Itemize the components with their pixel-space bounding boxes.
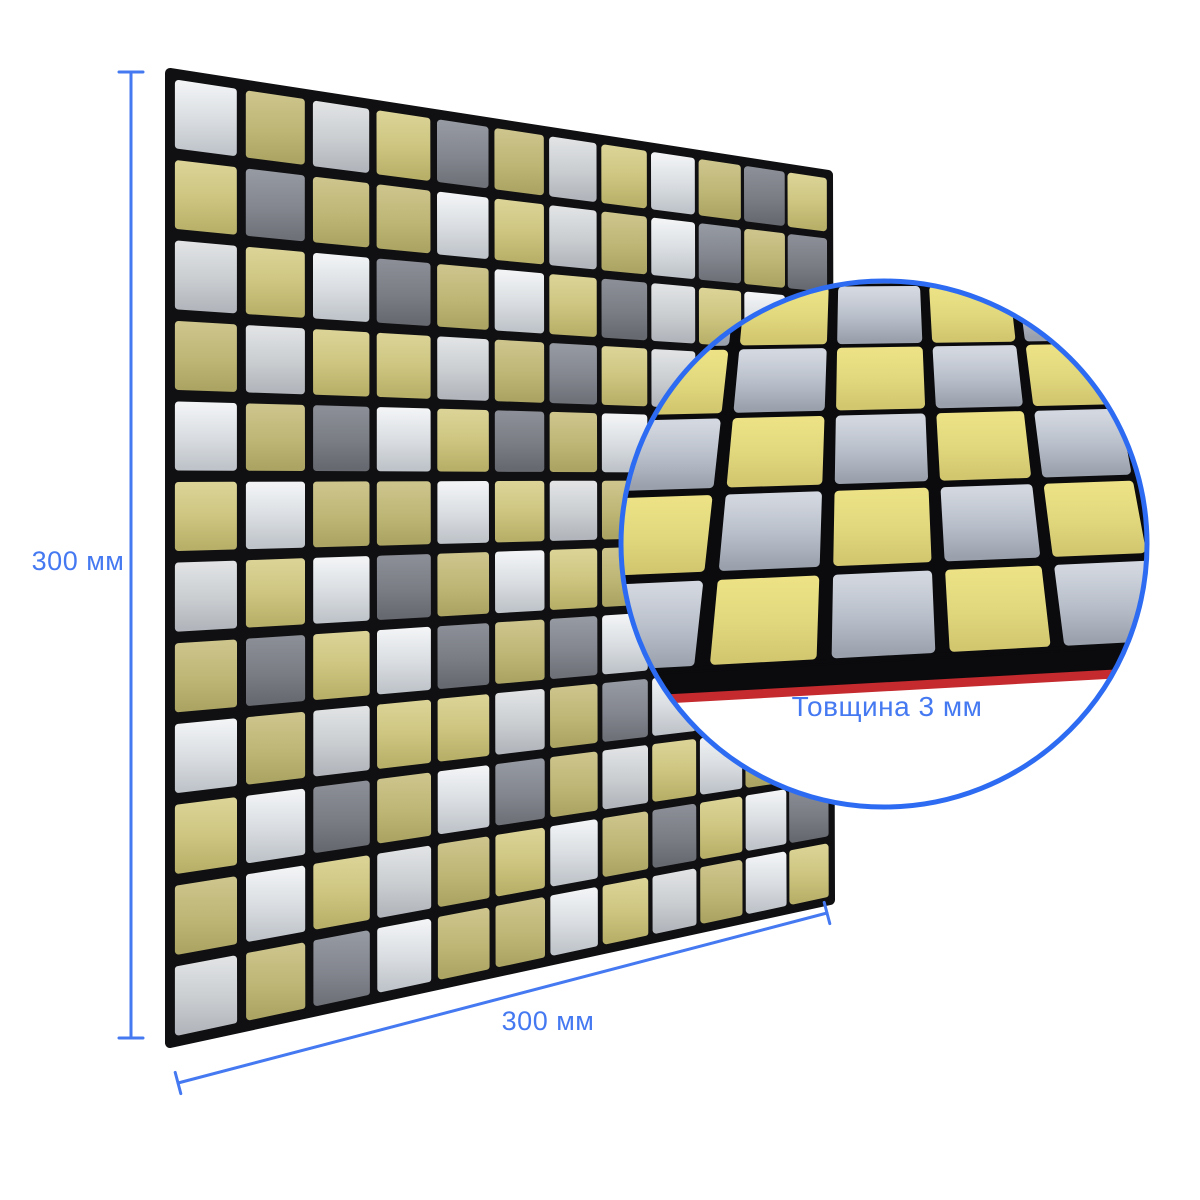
mosaic-tile — [499, 762, 542, 822]
mosaic-tile — [748, 170, 782, 223]
height-dimension-label: 300 мм — [16, 547, 140, 577]
mosaic-tile — [250, 869, 302, 938]
width-dimension-label: 300 мм — [474, 1007, 622, 1037]
mosaic-tile — [381, 776, 428, 839]
thickness-label: Товщина 3 мм — [780, 692, 994, 723]
mosaic-tile — [178, 84, 233, 153]
mosaic-tile — [441, 911, 486, 975]
mosaic-tile — [606, 749, 645, 806]
mosaic-tile — [178, 959, 233, 1032]
mosaic-tile — [441, 268, 486, 327]
mosaic-tile — [498, 132, 541, 192]
mosaic-tile — [554, 755, 595, 813]
mosaic-tile — [606, 683, 645, 739]
mosaic-tile — [249, 562, 301, 624]
inset-tile — [841, 351, 921, 406]
inset-tile — [842, 291, 918, 340]
inset-tile — [843, 235, 915, 279]
mosaic-tile — [499, 901, 542, 964]
mosaic-tile — [380, 558, 427, 617]
mosaic-tile — [655, 221, 692, 275]
inset-tile — [945, 489, 1035, 557]
mosaic-tile — [656, 872, 693, 930]
mosaic-tile — [317, 560, 366, 621]
mosaic-tile — [380, 411, 427, 468]
mosaic-tile — [178, 801, 233, 870]
mosaic-tile — [317, 784, 367, 849]
inset-tile — [937, 350, 1018, 404]
mosaic-tile — [380, 114, 427, 177]
mosaic-tile — [317, 333, 366, 393]
inset-tile — [950, 570, 1046, 647]
mosaic-tile — [553, 140, 594, 198]
inset-tile — [1039, 413, 1126, 473]
mosaic-tile — [499, 693, 542, 752]
mosaic-tile — [249, 329, 301, 391]
mosaic-tile — [704, 864, 739, 920]
mosaic-tile — [250, 792, 302, 859]
inset-tile — [738, 353, 822, 409]
mosaic-tile — [791, 176, 823, 227]
inset-tile — [931, 235, 1004, 279]
mosaic-tile — [178, 405, 233, 467]
mosaic-tile — [499, 554, 542, 610]
mosaic-tile — [605, 148, 644, 205]
mosaic-tile — [499, 831, 542, 892]
mosaic-tile — [178, 880, 233, 951]
mosaic-tile — [317, 709, 366, 773]
mosaic-tile — [553, 415, 594, 468]
mosaic-tile — [249, 94, 301, 161]
mosaic-tile — [441, 840, 486, 903]
mosaic-tile — [441, 340, 486, 397]
mosaic-tile — [554, 687, 595, 744]
mosaic-tile — [749, 855, 783, 910]
mosaic-tile — [441, 698, 486, 758]
mosaic-tile — [316, 104, 365, 169]
mosaic-tile — [250, 946, 302, 1016]
mosaic-tile — [178, 722, 233, 789]
mosaic-tile — [656, 808, 693, 865]
mosaic-tile — [381, 630, 428, 690]
mosaic-tile — [553, 347, 594, 401]
mosaic-tile — [381, 923, 428, 989]
mosaic-tile — [606, 815, 645, 873]
mosaic-tile — [441, 485, 486, 541]
mosaic-tile — [499, 623, 541, 680]
inset-tile — [1016, 235, 1091, 278]
mosaic-tile — [655, 287, 692, 340]
mosaic-tile — [655, 156, 692, 211]
mosaic-tile — [317, 257, 366, 319]
inset-tile — [731, 421, 820, 483]
mosaic-tile — [317, 485, 366, 544]
inset-tile — [836, 575, 931, 654]
mosaic-tile — [554, 891, 595, 952]
mosaic-tile — [178, 643, 233, 709]
mosaic-tile — [380, 485, 427, 542]
mosaic-tile — [441, 627, 486, 686]
mosaic-tile — [250, 639, 302, 703]
mosaic-tile — [749, 793, 783, 847]
mosaic-tile — [317, 934, 367, 1002]
inset-tile — [941, 416, 1026, 477]
mosaic-tile — [178, 244, 233, 310]
mosaic-tile — [317, 859, 367, 926]
mosaic-tile — [441, 412, 486, 468]
mosaic-tile — [249, 172, 301, 237]
mosaic-tile — [498, 202, 541, 260]
mosaic-tile — [249, 251, 301, 315]
inset-tile — [724, 496, 818, 567]
mosaic-tile — [605, 215, 644, 271]
mosaic-tile — [704, 800, 739, 855]
mosaic-tile — [791, 238, 823, 288]
inset-tile — [1049, 485, 1142, 552]
mosaic-tile — [606, 881, 645, 940]
mosaic-tile — [553, 620, 594, 676]
mosaic-tile — [605, 282, 644, 336]
mosaic-tile — [316, 181, 365, 244]
mosaic-tile — [702, 227, 737, 280]
mosaic-tile — [441, 195, 486, 255]
mosaic-tile — [441, 556, 486, 613]
mosaic-tile — [381, 849, 428, 914]
mosaic-tile — [553, 209, 594, 266]
mosaic-tile — [498, 414, 541, 469]
inset-tile — [715, 580, 815, 660]
mosaic-tile — [317, 409, 366, 468]
mosaic-tile — [178, 564, 233, 628]
mosaic-tile — [380, 262, 427, 322]
mosaic-tile — [498, 343, 541, 399]
mosaic-tile — [793, 847, 825, 901]
mosaic-tile — [554, 823, 595, 883]
mosaic-tile — [498, 484, 541, 539]
mosaic-tile — [317, 634, 367, 696]
mosaic-tile — [553, 484, 594, 537]
product-dimension-diagram: 300 мм 300 мм Товщина 3 мм — [0, 0, 1200, 1200]
mosaic-tile — [380, 336, 427, 395]
mosaic-tile — [178, 325, 233, 389]
mosaic-tile — [553, 552, 594, 607]
inset-tile — [838, 492, 927, 561]
mosaic-tile — [380, 188, 427, 250]
mosaic-tile — [250, 716, 302, 781]
mosaic-tile — [702, 163, 737, 217]
mosaic-tile — [656, 743, 693, 798]
mosaic-tile — [748, 233, 782, 285]
mosaic-tile — [605, 350, 644, 403]
mosaic-tile — [441, 123, 486, 184]
mosaic-tile — [249, 485, 301, 545]
mosaic-tile — [178, 485, 233, 547]
inset-tile — [839, 418, 923, 480]
mosaic-tile — [553, 278, 594, 334]
mosaic-tile — [249, 407, 301, 468]
mosaic-tile — [498, 273, 540, 330]
mosaic-tile — [441, 769, 486, 831]
mosaic-tile — [381, 703, 428, 765]
mosaic-tile — [178, 164, 233, 231]
